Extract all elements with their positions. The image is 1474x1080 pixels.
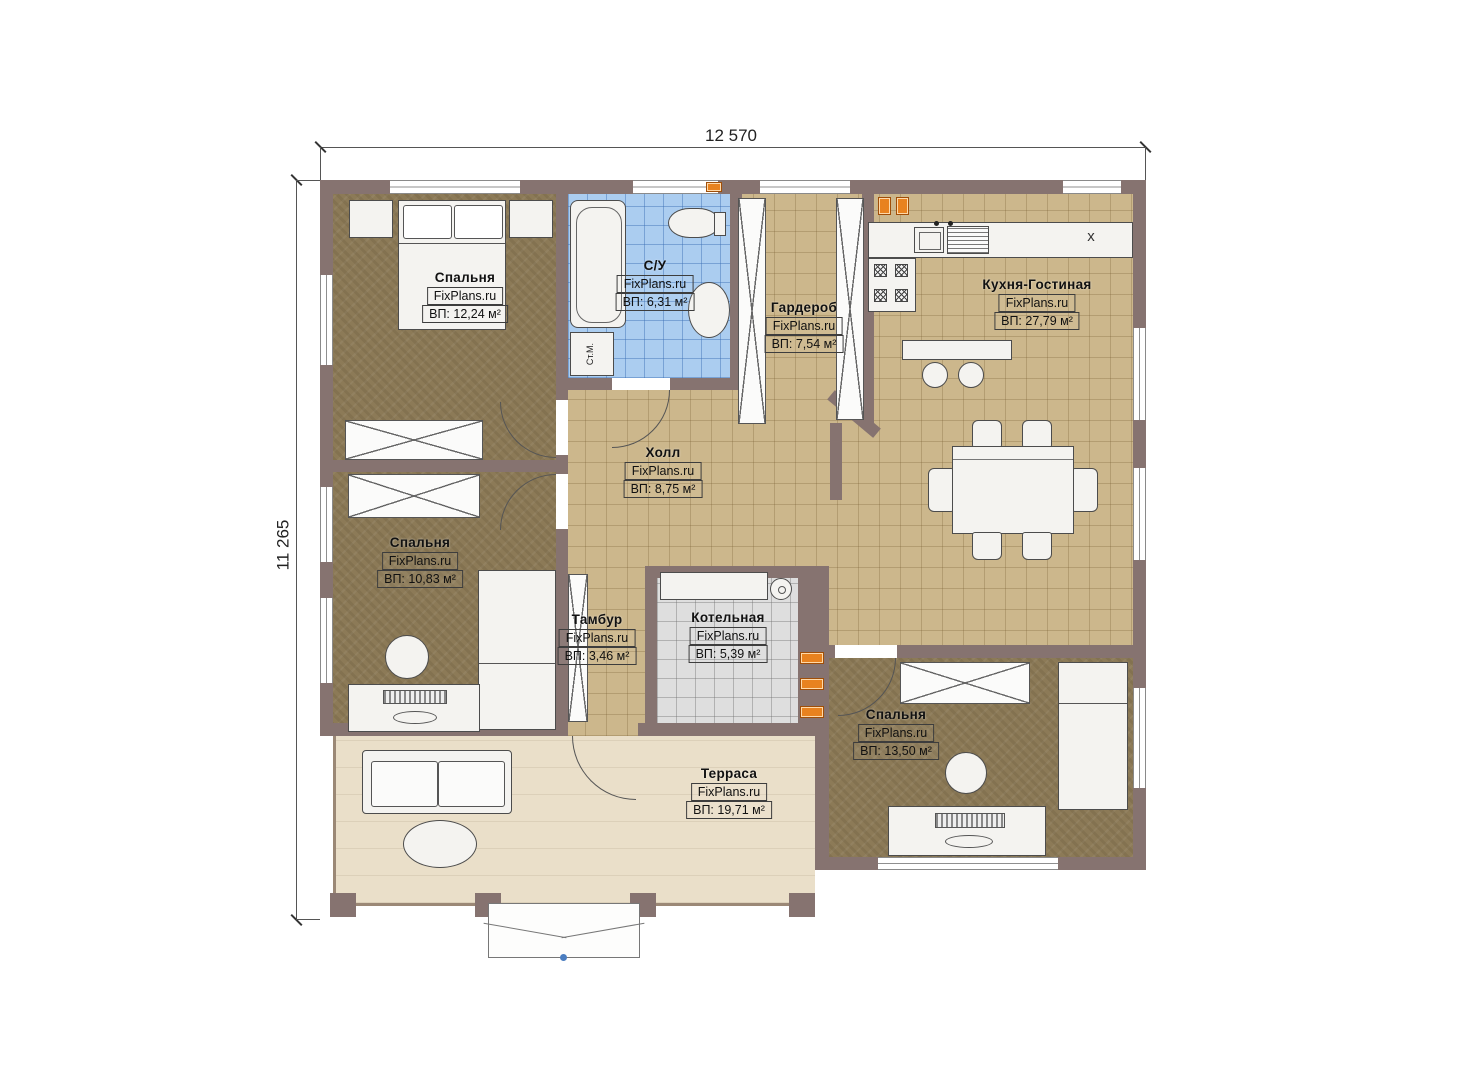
coffee-table-icon xyxy=(403,820,477,868)
office-chair-icon xyxy=(945,752,987,794)
watermark: FixPlans.ru xyxy=(382,552,459,570)
wardrobe-icon xyxy=(348,474,480,518)
room-label-bedroom-1: Спальня FixPlans.ru ВП: 12,24 м² xyxy=(422,270,508,323)
room-area: ВП: 19,71 м² xyxy=(686,801,772,819)
pillar xyxy=(330,893,356,917)
outlet-icon xyxy=(896,197,909,215)
window xyxy=(320,487,333,562)
stool-icon xyxy=(958,362,984,388)
extension-line xyxy=(296,180,320,181)
wardrobe-icon xyxy=(345,420,483,460)
room-label-hall: Холл FixPlans.ru ВП: 8,75 м² xyxy=(624,445,703,498)
room-name: Спальня xyxy=(422,270,508,285)
window xyxy=(1133,468,1146,560)
desk-icon xyxy=(888,806,1046,856)
keyboard-icon xyxy=(945,835,993,848)
bar-counter xyxy=(902,340,1012,360)
chair-icon xyxy=(1072,468,1098,512)
room-area: ВП: 6,31 м² xyxy=(616,293,695,311)
room-label-boiler-room: Котельная FixPlans.ru ВП: 5,39 м² xyxy=(689,610,768,663)
room-name: Тамбур xyxy=(558,612,637,627)
window xyxy=(320,598,333,683)
room-name: Гардероб xyxy=(765,300,844,315)
wardrobe-icon xyxy=(900,662,1030,704)
dimension-width-label: 12 570 xyxy=(705,126,757,146)
monitor-icon xyxy=(935,813,1005,828)
sofa-cushion xyxy=(438,761,505,807)
room-name: Спальня xyxy=(377,535,463,550)
watermark: FixPlans.ru xyxy=(691,783,768,801)
room-name: Спальня xyxy=(853,707,939,722)
kitchen-sink-icon xyxy=(914,227,944,253)
room-area: ВП: 10,83 м² xyxy=(377,570,463,588)
watermark: FixPlans.ru xyxy=(427,287,504,305)
window xyxy=(878,857,1058,870)
room-label-bedroom-2: Спальня FixPlans.ru ВП: 10,83 м² xyxy=(377,535,463,588)
room-area: ВП: 13,50 м² xyxy=(853,742,939,760)
outlet-icon xyxy=(878,197,891,215)
room-area: ВП: 8,75 м² xyxy=(624,480,703,498)
boiler-icon xyxy=(770,578,792,600)
chair-icon xyxy=(972,420,1002,448)
room-label-bedroom-3: Спальня FixPlans.ru ВП: 13,50 м² xyxy=(853,707,939,760)
faucet-dot xyxy=(948,221,953,226)
chair-icon xyxy=(1022,532,1052,560)
keyboard-icon xyxy=(393,711,437,724)
window xyxy=(760,180,850,194)
window xyxy=(320,275,333,365)
nightstand-icon xyxy=(509,200,553,238)
outlet-icon xyxy=(800,706,824,718)
door-opening xyxy=(556,474,568,529)
window xyxy=(1133,688,1146,788)
wall xyxy=(333,460,568,472)
window xyxy=(390,180,520,194)
boiler-equipment xyxy=(660,572,768,600)
nightstand-icon xyxy=(349,200,393,238)
dining-table-icon xyxy=(952,446,1074,534)
watermark: FixPlans.ru xyxy=(999,294,1076,312)
pillow-icon xyxy=(403,205,452,239)
faucet-dot xyxy=(934,221,939,226)
room-label-kitchen-living: Кухня-Гостиная FixPlans.ru ВП: 27,79 м² xyxy=(982,277,1091,330)
room-label-wardrobe-room: Гардероб FixPlans.ru ВП: 7,54 м² xyxy=(765,300,844,353)
room-area: ВП: 5,39 м² xyxy=(689,645,768,663)
floor-plan-canvas: 12 570 11 265 xyxy=(0,0,1474,1080)
door-opening xyxy=(556,400,568,455)
room-label-terrace: Терраса FixPlans.ru ВП: 19,71 м² xyxy=(686,766,772,819)
room-label-bathroom: С/У FixPlans.ru ВП: 6,31 м² xyxy=(616,258,695,311)
washing-machine-label: Ст.М. xyxy=(585,343,595,365)
dimension-width-line xyxy=(320,147,1146,148)
blanket-line xyxy=(399,243,505,244)
wall xyxy=(645,566,657,736)
door-opening xyxy=(612,378,670,390)
room-area: ВП: 12,24 м² xyxy=(422,305,508,323)
extension-line xyxy=(1145,147,1146,180)
pillar xyxy=(789,893,815,917)
chair-icon xyxy=(1022,420,1052,448)
watermark: FixPlans.ru xyxy=(766,317,843,335)
extension-line xyxy=(320,147,321,180)
entrance-steps xyxy=(488,903,640,958)
room-name: Кухня-Гостиная xyxy=(982,277,1091,292)
room-area: ВП: 7,54 м² xyxy=(765,335,844,353)
outlet-icon xyxy=(706,182,722,192)
door-opening xyxy=(835,645,897,658)
chair-icon xyxy=(928,468,954,512)
dimension-height-label: 11 265 xyxy=(273,520,293,571)
extension-line xyxy=(296,919,320,920)
outlet-icon xyxy=(800,652,824,664)
toilet-tank-icon xyxy=(714,212,726,236)
room-name: Терраса xyxy=(686,766,772,781)
monitor-icon xyxy=(383,690,447,704)
stove-icon xyxy=(868,258,916,312)
sofa-cushion xyxy=(371,761,438,807)
room-label-vestibule: Тамбур FixPlans.ru ВП: 3,46 м² xyxy=(558,612,637,665)
watermark: FixPlans.ru xyxy=(858,724,935,742)
pillow-icon xyxy=(454,205,503,239)
watermark: FixPlans.ru xyxy=(559,629,636,647)
window xyxy=(1063,180,1121,194)
washing-machine-icon: Ст.М. xyxy=(570,332,614,376)
dish-drainer-icon xyxy=(947,226,989,254)
single-bed-icon xyxy=(478,570,556,730)
room-area: ВП: 3,46 м² xyxy=(558,647,637,665)
wardrobe-icon xyxy=(738,198,766,424)
wall xyxy=(638,723,815,736)
sofa-icon xyxy=(362,750,512,814)
room-area: ВП: 27,79 м² xyxy=(994,312,1080,330)
room-name: Котельная xyxy=(689,610,768,625)
single-bed-icon xyxy=(1058,662,1128,810)
chair-icon xyxy=(972,532,1002,560)
entry-marker xyxy=(560,954,567,961)
outlet-icon xyxy=(800,678,824,690)
desk-icon xyxy=(348,684,480,732)
wall xyxy=(830,423,842,500)
dimension-height-line xyxy=(296,180,297,920)
office-chair-icon xyxy=(385,635,429,679)
stool-icon xyxy=(922,362,948,388)
window xyxy=(1133,328,1146,420)
room-name: С/У xyxy=(616,258,695,273)
sink-basin xyxy=(919,232,941,250)
watermark: FixPlans.ru xyxy=(625,462,702,480)
watermark: FixPlans.ru xyxy=(617,275,694,293)
fridge-mark: x xyxy=(1076,222,1106,252)
toilet-icon xyxy=(668,208,720,238)
room-name: Холл xyxy=(624,445,703,460)
watermark: FixPlans.ru xyxy=(690,627,767,645)
